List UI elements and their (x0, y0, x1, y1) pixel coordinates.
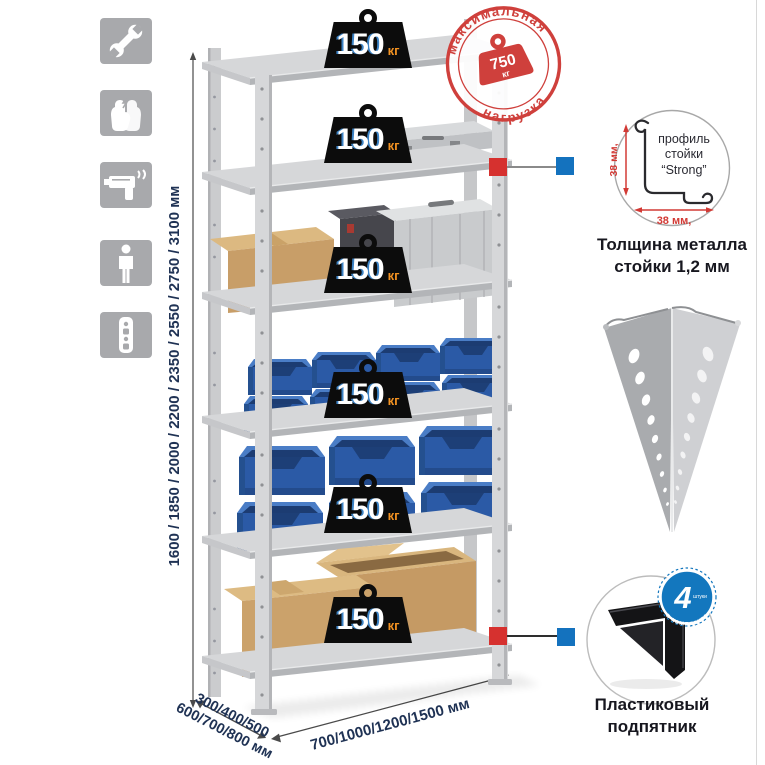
shelf2-load-badge: 150кг (324, 117, 412, 163)
load-unit: кг (388, 619, 400, 632)
shelf3-load-badge: 150кг (324, 247, 412, 293)
load-unit: кг (388, 44, 400, 57)
foot-connector-line (507, 635, 557, 637)
person-icon (100, 240, 152, 286)
shelf4-load-badge: 150кг (324, 372, 412, 418)
load-unit: кг (388, 394, 400, 407)
load-value: 150 (337, 380, 384, 410)
profile-caption: Толщина металла стойки 1,2 мм (582, 234, 762, 278)
profile-label-1: профиль (658, 132, 710, 146)
load-value: 150 (337, 255, 384, 285)
profile-marker-red-square (489, 158, 507, 176)
corner-post-image (592, 294, 752, 544)
post-profile-callout: 38 мм, 38 мм, профиль стойки “Strong” (584, 106, 760, 232)
load-value: 150 (337, 605, 384, 635)
foot-caption-line1: Пластиковый (595, 695, 710, 714)
profile-marker-blue-square (556, 157, 574, 175)
kit-count-units: штуки (693, 594, 707, 600)
profile-caption-line1: Толщина металла (597, 235, 747, 254)
rack-post-icon (100, 312, 152, 358)
profile-dim-horizontal: 38 мм, (657, 215, 692, 227)
foot-marker-blue-square (557, 628, 575, 646)
wrench-icon (100, 18, 152, 64)
height-dimension-label: 1600 / 1850 / 2000 / 2200 / 2350 / 2550 … (166, 51, 186, 701)
load-unit: кг (388, 509, 400, 522)
foot-caption-line2: подпятник (608, 717, 697, 736)
gloves-icon (100, 90, 152, 136)
load-value: 150 (337, 495, 384, 525)
load-unit: кг (388, 139, 400, 152)
load-value: 150 (337, 125, 384, 155)
shelf6-load-badge: 150кг (324, 597, 412, 643)
shelf5-load-badge: 150кг (324, 487, 412, 533)
profile-caption-line2: стойки 1,2 мм (614, 257, 730, 276)
kit-count-value: 4 (673, 580, 691, 615)
product-infographic: 1600 / 1850 / 2000 / 2200 / 2350 / 2550 … (0, 0, 765, 765)
plastic-foot-callout: 4 штуки в комплекте (584, 566, 726, 712)
foot-marker-red-square (489, 627, 507, 645)
foot-caption: Пластиковый подпятник (576, 694, 728, 738)
profile-dim-vertical: 38 мм, (608, 143, 620, 176)
profile-label-3: “Strong” (661, 163, 706, 177)
profile-connector-line (507, 166, 556, 168)
shelf1-load-badge: 150кг (324, 22, 412, 68)
kit-count-badge: 4 штуки в комплекте (658, 568, 716, 628)
load-value: 150 (337, 30, 384, 60)
profile-label-2: стойки (665, 147, 703, 161)
drill-icon (100, 162, 152, 208)
load-unit: кг (388, 269, 400, 282)
